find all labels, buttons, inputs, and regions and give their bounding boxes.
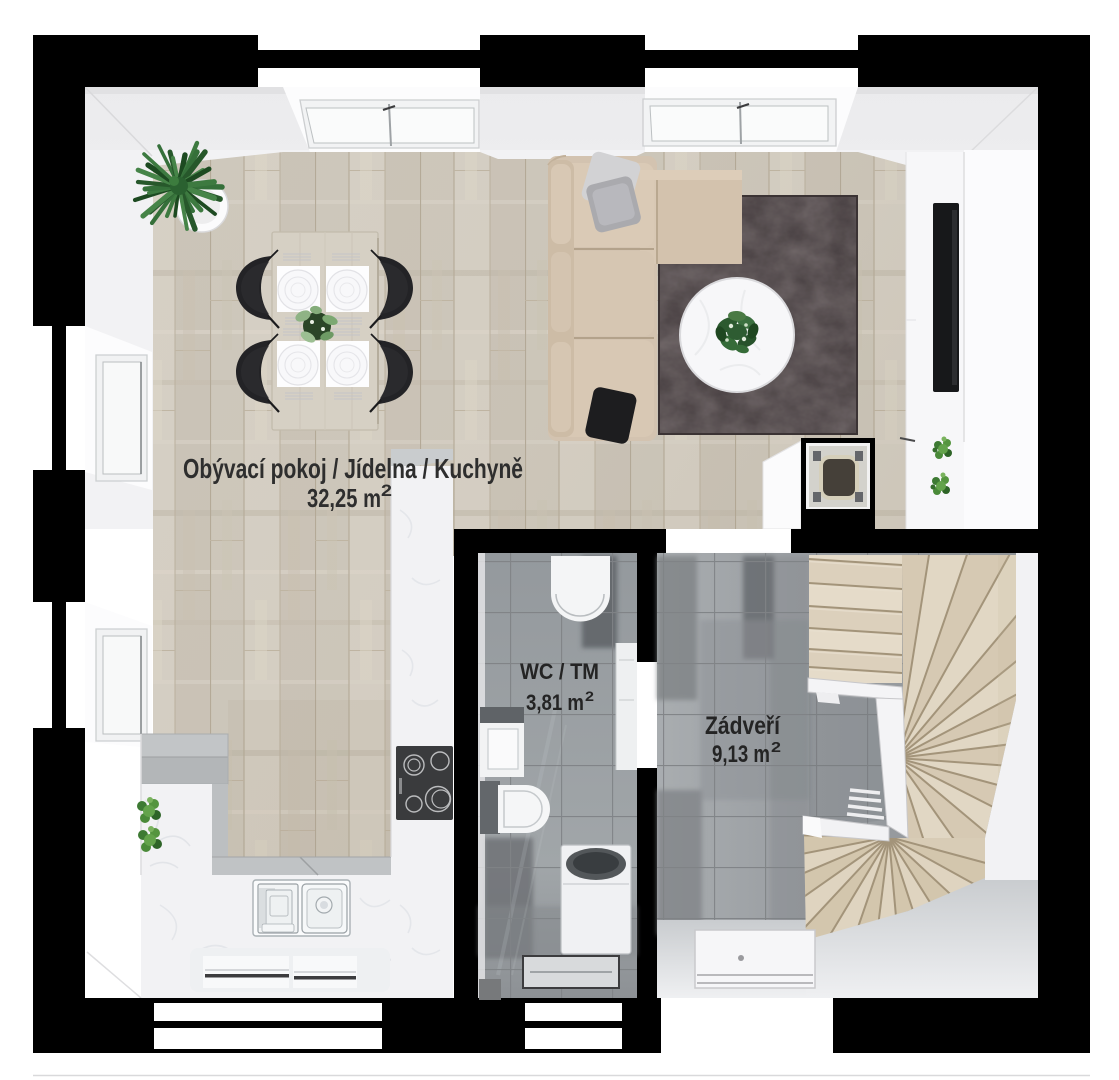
svg-text:2: 2 — [585, 688, 594, 704]
svg-text:Zádveří: Zádveří — [705, 712, 781, 740]
svg-text:2: 2 — [381, 481, 392, 500]
svg-text:2: 2 — [771, 739, 781, 756]
svg-text:Obývací pokoj / Jídelna / Kuch: Obývací pokoj / Jídelna / Kuchyně — [183, 453, 523, 484]
svg-text:WC / TM: WC / TM — [520, 659, 599, 684]
svg-text:32,25 m: 32,25 m — [307, 483, 381, 513]
svg-text:3,81 m: 3,81 m — [526, 690, 584, 715]
svg-text:9,13 m: 9,13 m — [712, 741, 770, 768]
